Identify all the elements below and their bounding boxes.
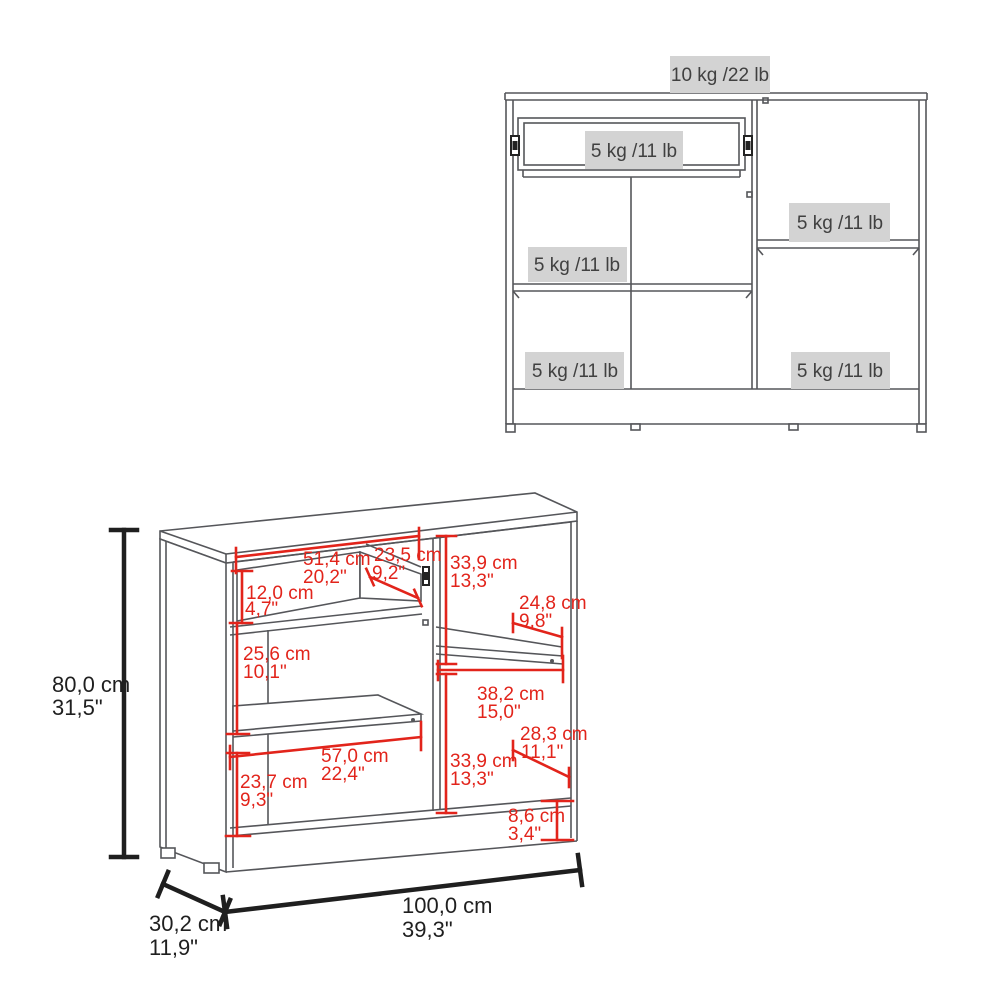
dim-overall-height-in: 31,5" (52, 695, 103, 720)
drawer-hinge-left-pin (513, 141, 518, 150)
door-knob-mark (423, 620, 428, 625)
weight-label-top: 10 kg /22 lb (670, 56, 770, 93)
dim-right-shelf-depth: 24,8 cm 9,8" (513, 593, 587, 658)
left-shelf-surface (233, 695, 421, 731)
dim-right-top-height: 33,9 cm 13,3" (437, 536, 518, 664)
weight-label-bottom-right: 5 kg /11 lb (791, 352, 890, 389)
dim-right-shelf-depth-in: 9,8" (519, 611, 552, 632)
dim-overall-width-cm: 100,0 cm (402, 893, 493, 918)
dim-right-top-height-in: 13,3" (450, 571, 494, 592)
front-feet (506, 424, 926, 432)
dim-left-bottom-height-in: 9,3" (240, 790, 273, 811)
dim-right-bottom-depth-in: 11,1" (521, 742, 563, 763)
drawer-hinge-pin (424, 572, 428, 580)
weight-label-bottom-left-text: 5 kg /11 lb (532, 361, 618, 382)
dim-overall-height: 80,0 cm 31,5" (52, 530, 137, 857)
furniture-dimension-sheet: 10 kg /22 lb 5 kg /11 lb 5 kg /11 lb 5 k… (0, 0, 1000, 1000)
weight-label-drawer: 5 kg /11 lb (585, 131, 683, 169)
front-view-diagram: 10 kg /22 lb 5 kg /11 lb 5 kg /11 lb 5 k… (505, 56, 927, 432)
weight-label-bottom-left: 5 kg /11 lb (525, 352, 624, 389)
weight-label-left-shelf-text: 5 kg /11 lb (534, 255, 620, 276)
weight-label-right-shelf: 5 kg /11 lb (789, 203, 890, 242)
dim-overall-depth: 30,2 cm 11,9" (149, 872, 230, 960)
dimension-view-diagram: 51,4 cm 20,2" 23,5 cm 9,2" 12,0 cm 4,7" (52, 493, 588, 960)
dim-drawer-height-in: 4,7" (245, 599, 278, 620)
dim-overall-depth-in: 11,9" (149, 935, 198, 960)
dim-right-bottom-height-in: 13,3" (450, 769, 494, 790)
dim-left-bottom-width-in: 22,4" (321, 764, 365, 785)
weight-label-right-shelf-text: 5 kg /11 lb (797, 213, 883, 234)
weight-label-bottom-right-text: 5 kg /11 lb (797, 361, 883, 382)
dim-overall-height-cm: 80,0 cm (52, 672, 130, 697)
drawer-hinge-right-pin (746, 141, 751, 150)
dim-left-bottom-height: 23,7 cm 9,3" (226, 753, 308, 836)
right-shelf-front-edge (436, 646, 563, 656)
dim-right-inner-width-lines (438, 656, 563, 682)
right-shelf-thickness (436, 654, 563, 664)
drawer-lip-lines (523, 170, 740, 177)
weight-label-left-shelf: 5 kg /11 lb (528, 247, 627, 282)
dim-base-height-in: 3,4" (508, 824, 541, 845)
dim-right-inner-width-in: 15,0" (477, 702, 521, 723)
dim-right-inner-width: 38,2 cm 15,0" (438, 656, 563, 723)
left-middle-shelf (233, 695, 421, 737)
diagram-canvas: 10 kg /22 lb 5 kg /11 lb 5 kg /11 lb 5 k… (0, 0, 1000, 1000)
dim-overall-depth-cm: 30,2 cm (149, 911, 227, 936)
dim-drawer-depth-in: 9,2" (372, 563, 405, 584)
weight-label-top-text: 10 kg /22 lb (671, 65, 769, 86)
dim-base-height: 8,6 cm 3,4" (508, 801, 573, 845)
shelf-pin-icon (550, 659, 554, 663)
dim-overall-width-in: 39,3" (402, 917, 453, 942)
dim-left-middle-height-in: 10,1" (243, 662, 287, 683)
left-side-panel (160, 539, 226, 872)
shelf-pin-icon (411, 718, 415, 722)
weight-label-drawer-text: 5 kg /11 lb (591, 141, 677, 162)
